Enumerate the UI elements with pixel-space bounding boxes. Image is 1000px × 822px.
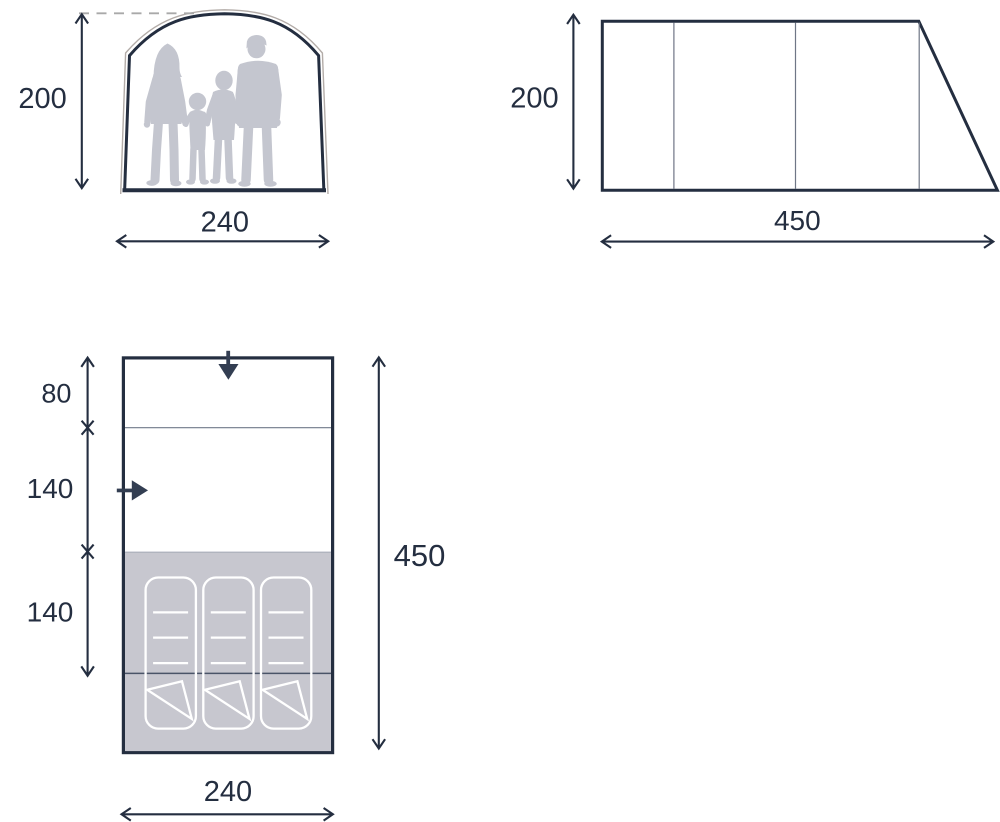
svg-text:450: 450 — [394, 538, 446, 573]
svg-text:240: 240 — [201, 207, 249, 239]
svg-text:450: 450 — [774, 205, 821, 236]
svg-text:80: 80 — [41, 378, 71, 408]
svg-text:140: 140 — [27, 597, 74, 628]
svg-text:140: 140 — [27, 473, 74, 504]
svg-text:240: 240 — [204, 776, 252, 808]
svg-text:200: 200 — [510, 83, 558, 115]
svg-text:200: 200 — [18, 83, 66, 115]
